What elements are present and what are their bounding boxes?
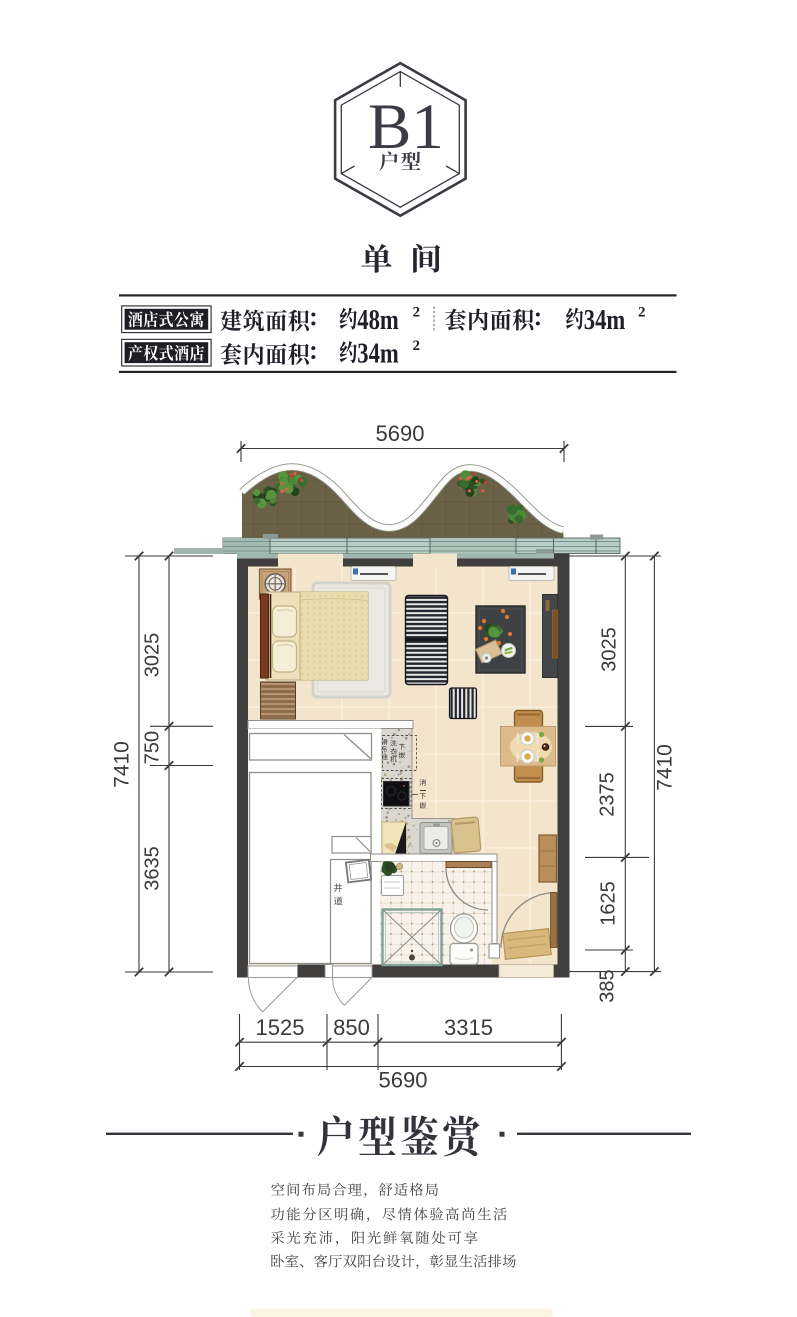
svg-text:5690: 5690 — [376, 421, 425, 446]
svg-text:3025: 3025 — [142, 633, 164, 678]
svg-text:1625: 1625 — [598, 881, 620, 926]
svg-text:750: 750 — [142, 731, 164, 764]
svg-text:2: 2 — [413, 338, 421, 354]
svg-text:B1: B1 — [368, 91, 444, 163]
svg-text:1525: 1525 — [256, 1015, 305, 1040]
svg-text:7410: 7410 — [111, 741, 134, 788]
svg-text:2375: 2375 — [597, 772, 619, 817]
svg-text:48m: 48m — [357, 305, 399, 336]
svg-text:34m: 34m — [357, 339, 399, 370]
svg-text:34m: 34m — [584, 305, 626, 336]
svg-text:3025: 3025 — [599, 627, 621, 672]
svg-text:850: 850 — [333, 1015, 370, 1040]
svg-text:3635: 3635 — [142, 846, 164, 891]
svg-text:7410: 7410 — [654, 744, 677, 791]
svg-text:3315: 3315 — [444, 1015, 493, 1040]
svg-text:5690: 5690 — [379, 1068, 428, 1093]
svg-text:2: 2 — [638, 305, 646, 321]
svg-text:385: 385 — [597, 969, 619, 1002]
svg-text:2: 2 — [413, 305, 421, 321]
